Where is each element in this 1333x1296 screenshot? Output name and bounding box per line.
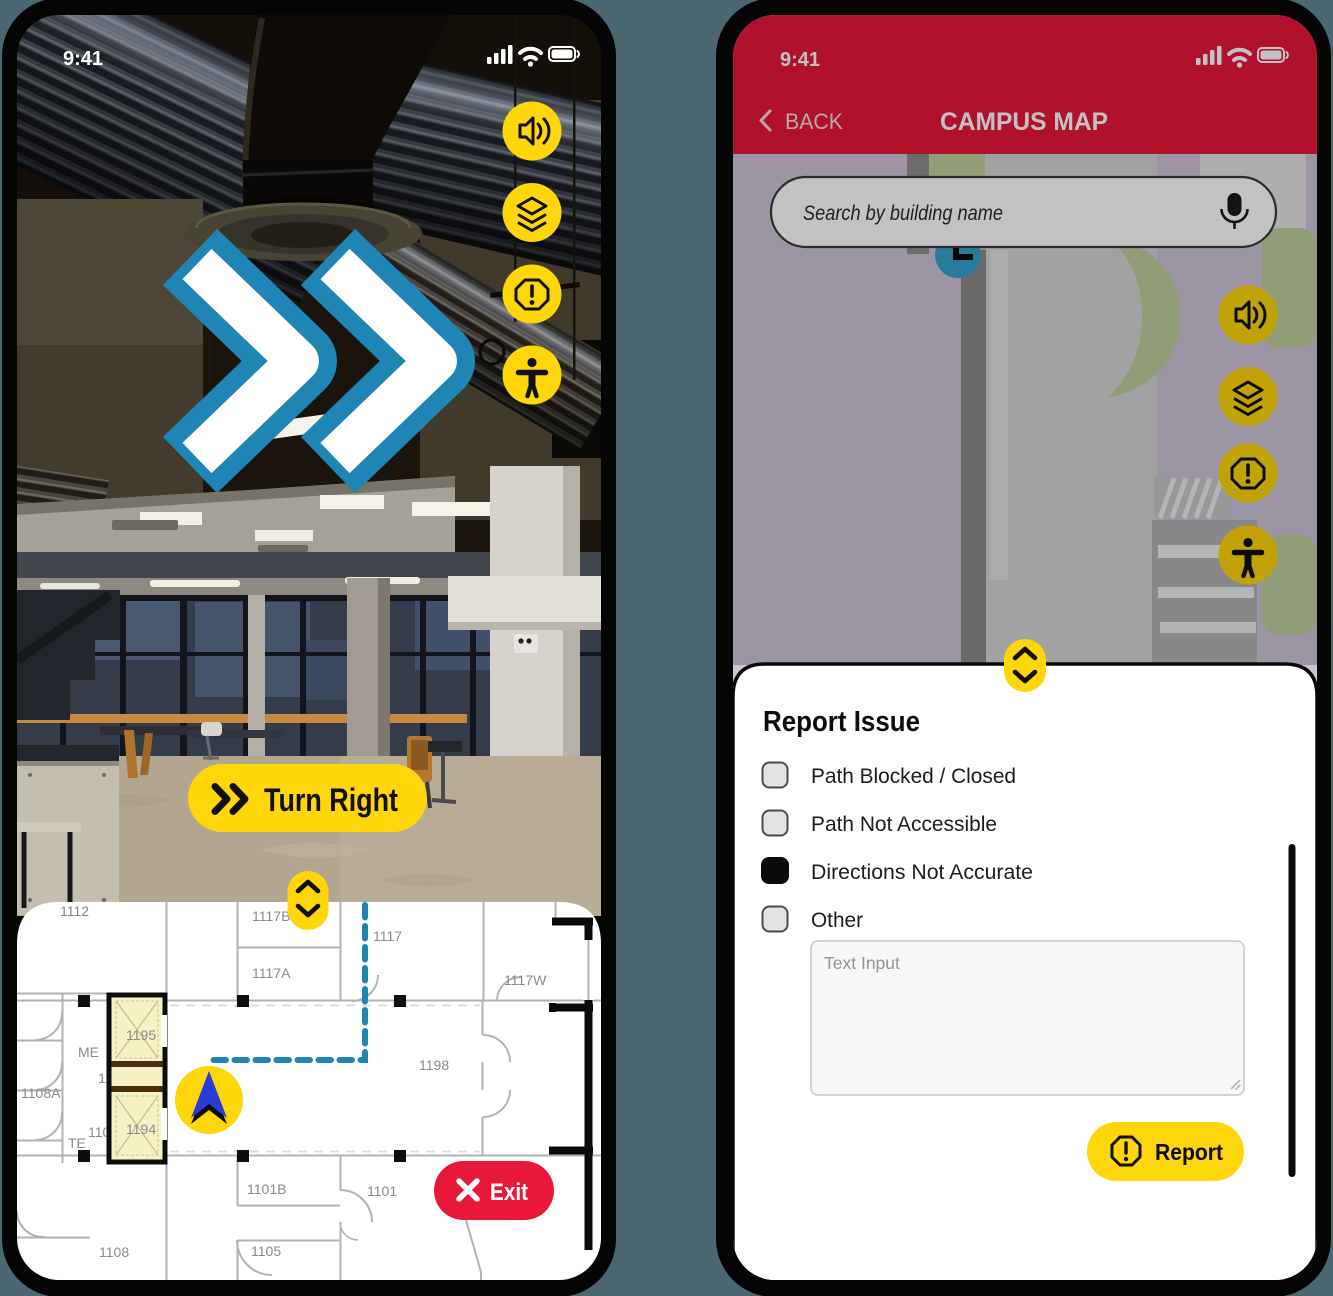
svg-text:1108A: 1108A	[21, 1085, 61, 1101]
svg-text:Path Not Accessible: Path Not Accessible	[811, 812, 997, 836]
svg-text:1112: 1112	[60, 903, 89, 919]
svg-text:Report: Report	[1155, 1139, 1223, 1165]
svg-text:1117A: 1117A	[252, 965, 291, 981]
svg-text:1105: 1105	[251, 1243, 281, 1259]
svg-text:Exit: Exit	[490, 1179, 528, 1206]
svg-text:1101: 1101	[367, 1183, 397, 1199]
svg-text:ME: ME	[78, 1044, 99, 1060]
svg-text:1194: 1194	[126, 1121, 156, 1137]
svg-text:Turn Right: Turn Right	[264, 782, 398, 818]
svg-text:1117W: 1117W	[504, 972, 547, 988]
svg-text:Path Blocked / Closed: Path Blocked / Closed	[811, 764, 1016, 788]
svg-text:9:41: 9:41	[63, 48, 103, 70]
svg-text:1108: 1108	[99, 1244, 129, 1260]
svg-text:1117: 1117	[373, 928, 402, 944]
svg-text:1117B: 1117B	[252, 908, 290, 924]
svg-text:TE: TE	[68, 1135, 86, 1151]
svg-text:1198: 1198	[419, 1057, 449, 1073]
svg-text:Directions Not Accurate: Directions Not Accurate	[811, 860, 1033, 884]
svg-text:Other: Other	[811, 908, 863, 932]
svg-text:1101B: 1101B	[247, 1181, 286, 1197]
svg-text:1195: 1195	[126, 1027, 156, 1043]
svg-text:Report Issue: Report Issue	[763, 706, 920, 738]
svg-text:Text Input: Text Input	[824, 953, 900, 973]
